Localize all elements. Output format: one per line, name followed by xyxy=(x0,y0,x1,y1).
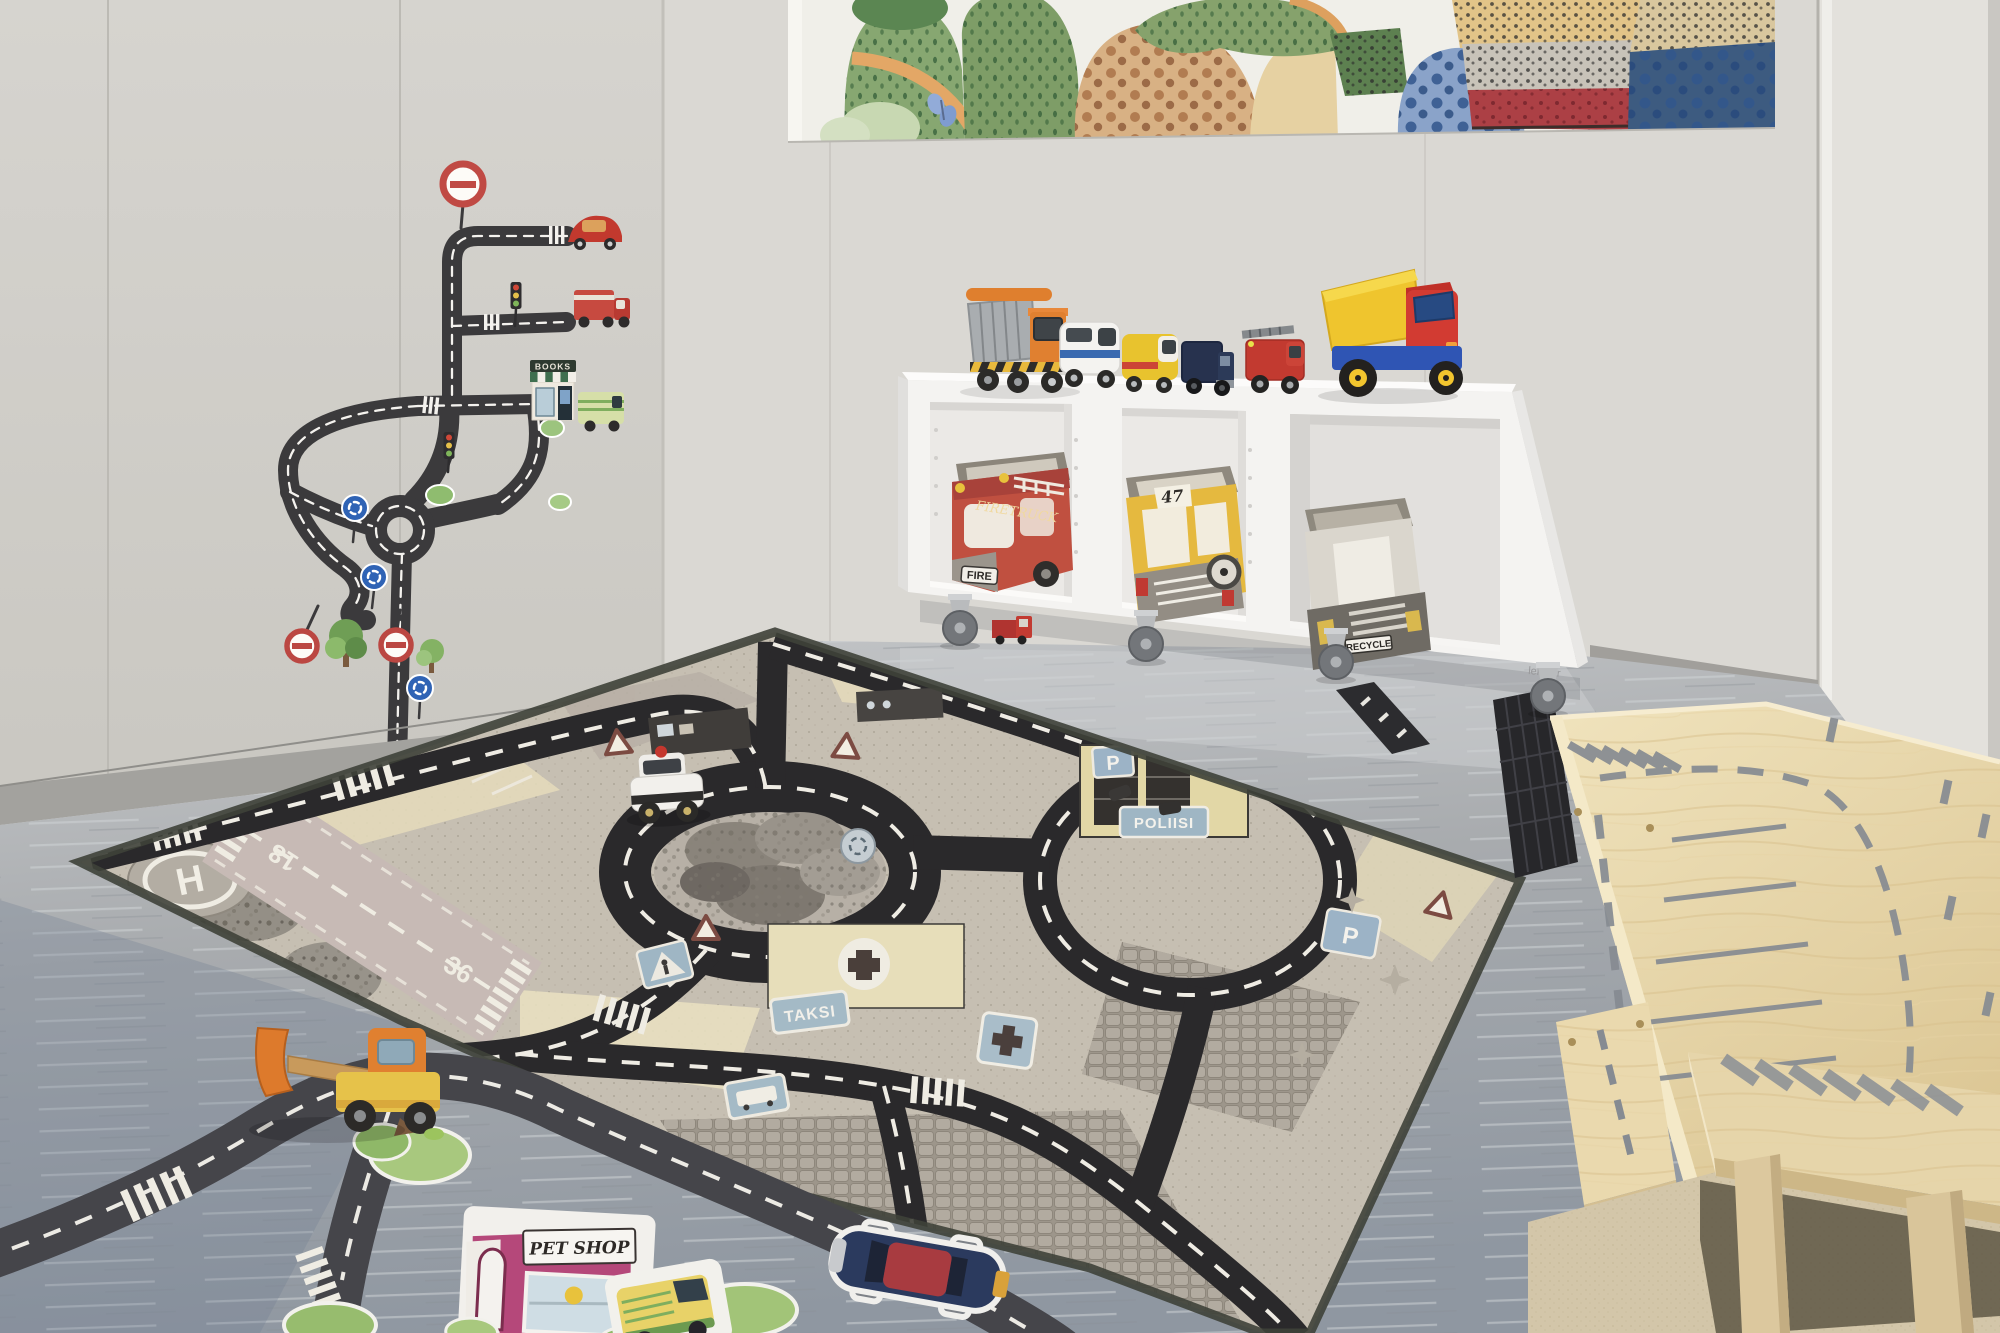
screw-icon xyxy=(1646,824,1654,832)
bush-icon xyxy=(549,494,571,510)
wooden-play-structure xyxy=(1528,704,2000,1333)
taksi-sign: TAKSI xyxy=(770,991,850,1034)
pet-shop-label: PET SHOP xyxy=(528,1238,631,1260)
wall-mural xyxy=(788,0,1775,154)
bin-firetruck: FIRETRUCK FIRE xyxy=(952,452,1073,592)
rug-roundabout-park xyxy=(654,812,886,932)
bus-bin-number: 47 xyxy=(1160,486,1184,507)
bush-decal xyxy=(284,1303,376,1333)
playroom-scene: BOOKS xyxy=(0,0,2000,1333)
rug-dark-building xyxy=(856,687,943,721)
hospital-sign-icon xyxy=(977,1012,1037,1069)
svg-text:P: P xyxy=(1106,752,1121,775)
screw-icon xyxy=(1574,808,1582,816)
bin-schoolbus: 47 xyxy=(1126,466,1246,624)
playroom-photo: BOOKS xyxy=(0,0,2000,1333)
bush-icon xyxy=(426,485,454,505)
bush-icon xyxy=(540,419,564,437)
bin-recycle: RECYCLE xyxy=(1305,498,1431,670)
firetruck-plate: FIRE xyxy=(966,569,992,583)
poliisi-label: POLIISI xyxy=(1134,815,1194,832)
parking-sign: P xyxy=(1321,908,1381,959)
roundabout-emblem-icon xyxy=(841,829,875,863)
books-shop-decal: BOOKS xyxy=(530,360,576,420)
books-sign-label: BOOKS xyxy=(535,362,571,372)
